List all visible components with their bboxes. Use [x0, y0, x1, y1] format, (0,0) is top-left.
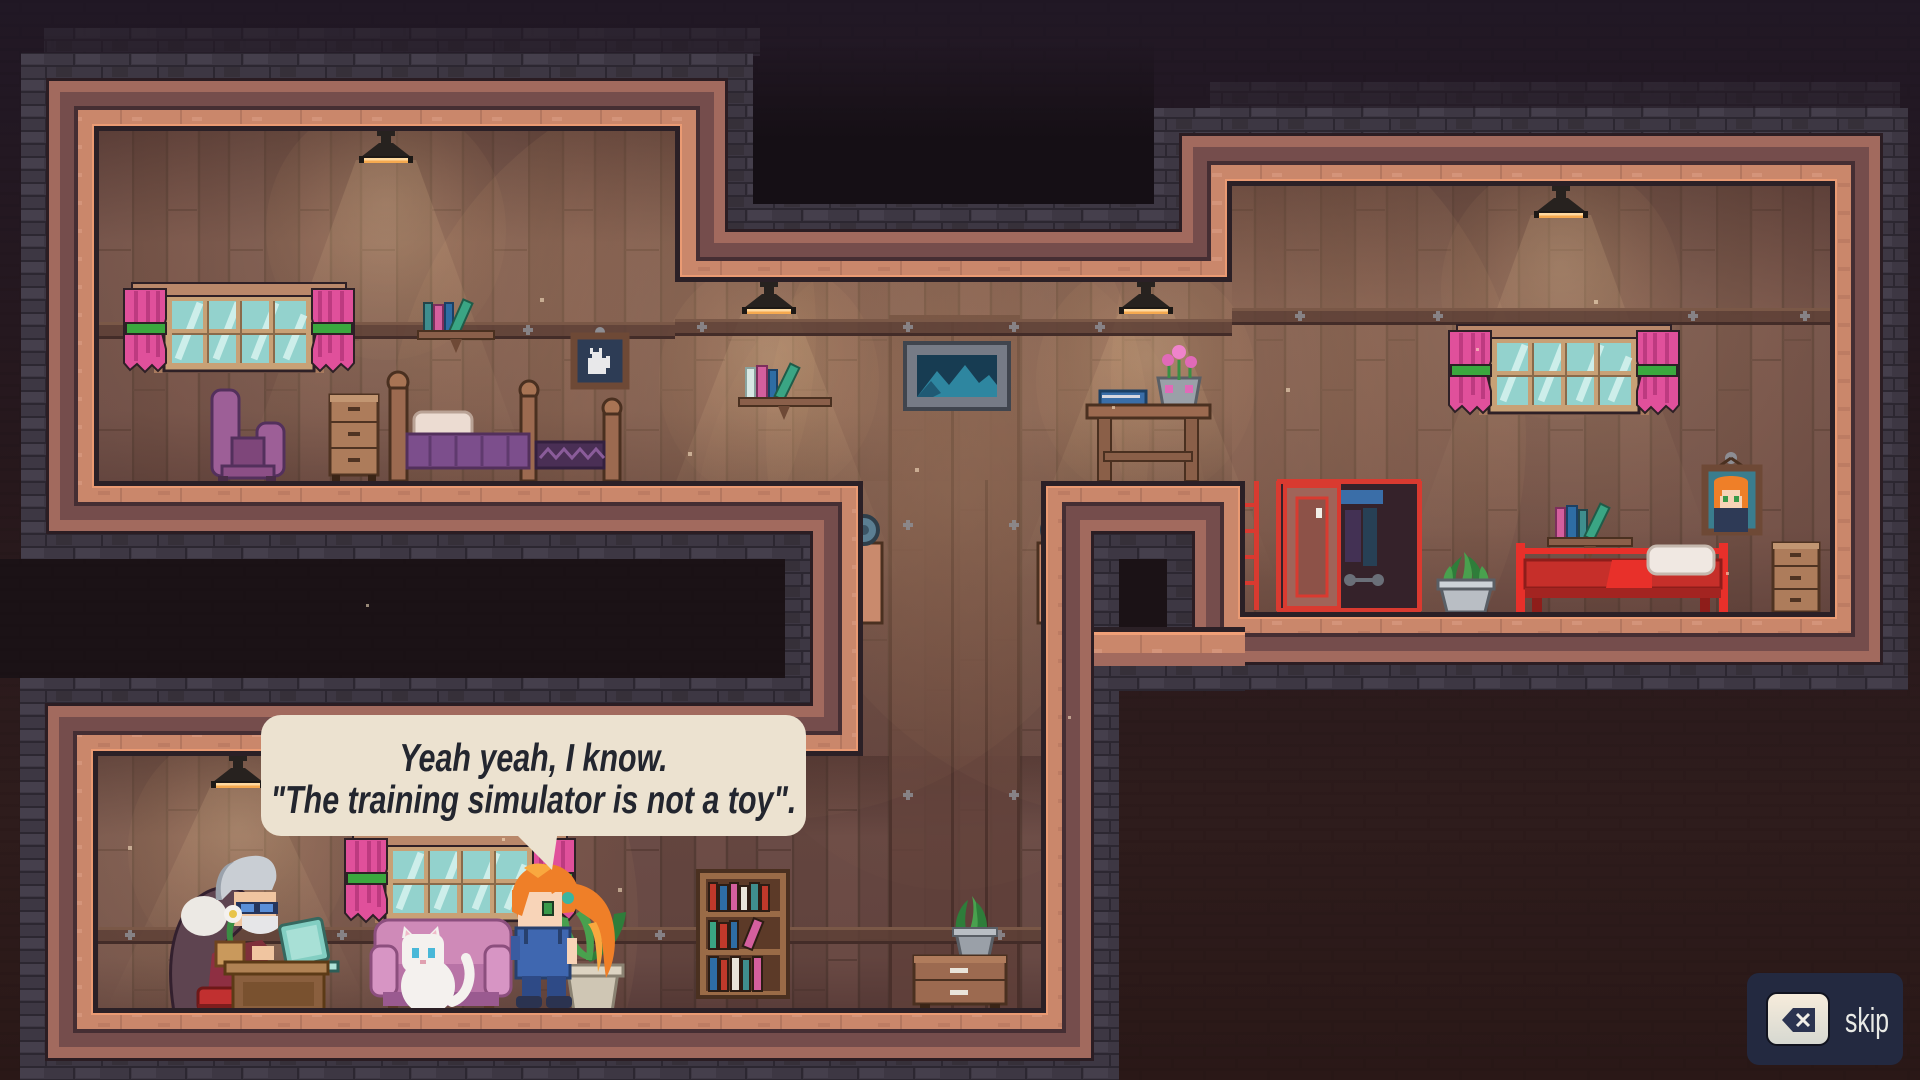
- svg-text:Yeah yeah, I know.: Yeah yeah, I know.: [399, 736, 667, 779]
- svg-text:skip: skip: [1845, 1002, 1889, 1040]
- svg-text:"The training simulator is not: "The training simulator is not a toy".: [271, 778, 797, 821]
